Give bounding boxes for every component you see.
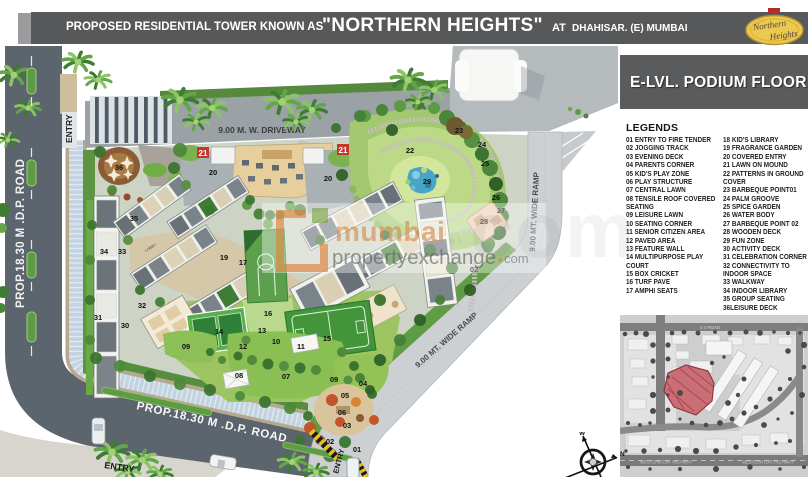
svg-text:34: 34: [100, 247, 109, 256]
svg-text:12: 12: [239, 342, 247, 351]
svg-text:32: 32: [138, 301, 146, 310]
svg-text:31: 31: [94, 313, 102, 322]
svg-text:02: 02: [326, 437, 334, 446]
svg-text:21: 21: [199, 149, 208, 158]
svg-text:17: 17: [239, 258, 247, 267]
svg-text:14: 14: [215, 327, 224, 336]
svg-text:N: N: [620, 451, 625, 458]
svg-text:36: 36: [115, 163, 123, 172]
svg-text:03: 03: [343, 421, 351, 430]
svg-text:15: 15: [323, 334, 331, 343]
svg-text:05: 05: [341, 391, 349, 400]
svg-text:11: 11: [297, 342, 305, 351]
svg-text:06: 06: [338, 408, 346, 417]
svg-text:22: 22: [406, 146, 414, 155]
svg-text:20: 20: [324, 174, 332, 183]
svg-text:20: 20: [209, 168, 217, 177]
svg-text:mumbai: mumbai: [335, 216, 445, 247]
svg-text:13: 13: [258, 326, 266, 335]
svg-text:25: 25: [481, 159, 489, 168]
svg-text:01: 01: [353, 445, 361, 454]
svg-text:S V ROAD: S V ROAD: [700, 325, 720, 330]
svg-text:29: 29: [423, 177, 431, 186]
svg-text:W: W: [579, 432, 586, 437]
svg-text:16: 16: [264, 309, 272, 318]
svg-text:09: 09: [330, 375, 338, 384]
svg-text:23: 23: [455, 126, 463, 135]
svg-text:35: 35: [130, 214, 138, 223]
svg-text:PROP.18.30 M .D.P. ROAD: PROP.18.30 M .D.P. ROAD: [15, 159, 27, 308]
svg-text:21: 21: [339, 146, 348, 155]
svg-text:07: 07: [282, 372, 290, 381]
svg-text:24: 24: [478, 140, 487, 149]
svg-text:WESTERN EXP. HIGHWAY: WESTERN EXP. HIGHWAY: [640, 460, 692, 465]
svg-text:WESTERN EXP. HIGHWAY: WESTERN EXP. HIGHWAY: [742, 460, 794, 465]
svg-text:ENTRY: ENTRY: [64, 114, 74, 143]
svg-text:08: 08: [235, 371, 243, 380]
svg-text:30: 30: [121, 321, 129, 330]
svg-text:10: 10: [272, 337, 280, 346]
svg-text:04: 04: [359, 379, 368, 388]
svg-text:09: 09: [182, 342, 190, 351]
svg-text:19: 19: [220, 253, 228, 262]
svg-text:33: 33: [118, 247, 126, 256]
